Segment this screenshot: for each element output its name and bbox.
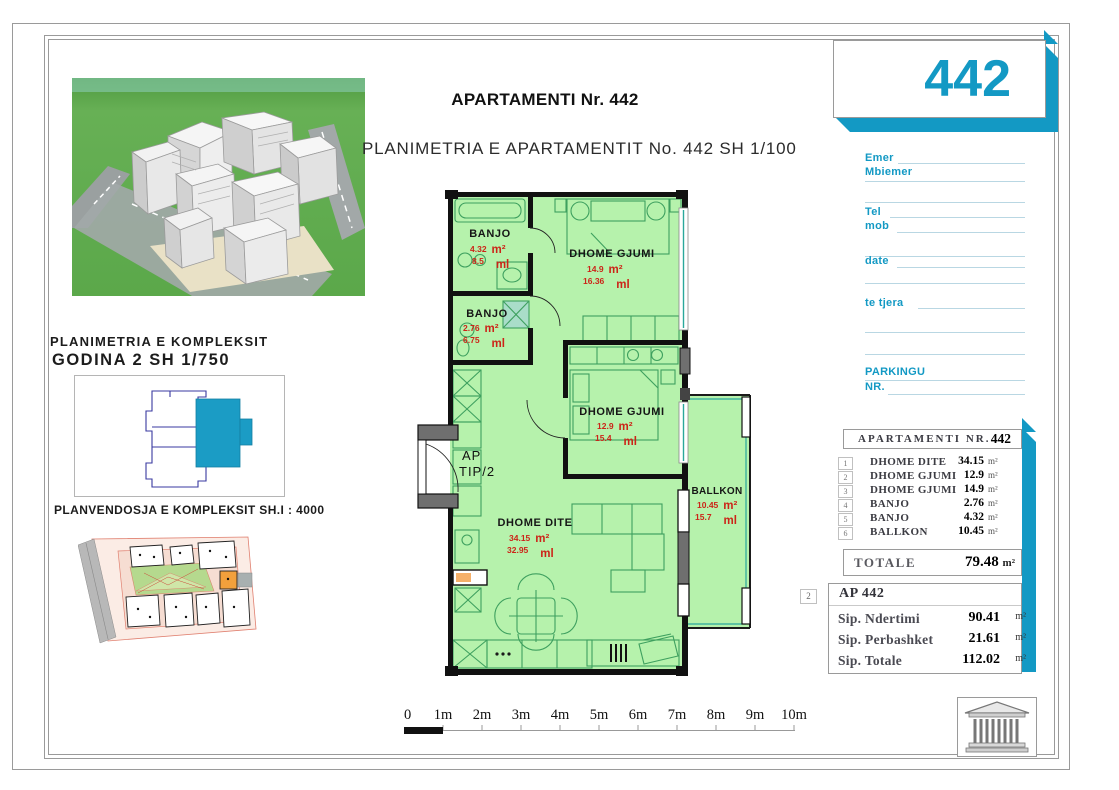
summary-row: Sip. Perbashket 21.61 m² bbox=[838, 631, 1028, 649]
site-plan-caption: PLANVENDOSJA E KOMPLEKSIT SH.I : 4000 bbox=[54, 503, 324, 517]
complex-plan-scale: GODINA 2 SH 1/750 bbox=[52, 351, 230, 370]
summary-row: Sip. Ndertimi 90.41 m² bbox=[838, 610, 1028, 628]
summary-title: AP 442 bbox=[829, 584, 1021, 606]
summary-row: Sip. Totale 112.02 m² bbox=[838, 652, 1028, 670]
field-label-emer: Emer bbox=[865, 152, 894, 164]
field-label-te-tjera: te tjera bbox=[865, 297, 903, 309]
scale-label-10m: 10m bbox=[781, 707, 808, 723]
scale-label-9m: 9m bbox=[746, 707, 765, 723]
room-label-dhome-gjumi-2: DHOME GJUMI bbox=[579, 406, 664, 418]
sheet-badge: 2 bbox=[800, 589, 817, 604]
scale-label-3m: 3m bbox=[512, 707, 531, 723]
summary-unit: m² bbox=[1015, 611, 1026, 622]
area-table-header-value: 442 bbox=[991, 431, 1021, 447]
row-unit: m² bbox=[988, 512, 998, 522]
scale-label-4m: 4m bbox=[551, 707, 570, 723]
table-row: 4 BANJO 2.76 m² bbox=[838, 498, 1020, 512]
row-name: BANJO bbox=[870, 512, 909, 524]
page-subtitle: PLANIMETRIA E APARTAMENTIT No. 442 SH 1/… bbox=[362, 139, 797, 159]
scale-label-2m: 2m bbox=[473, 707, 492, 723]
table-row: 2 DHOME GJUMI 12.9 m² bbox=[838, 470, 1020, 484]
scale-label-8m: 8m bbox=[707, 707, 726, 723]
summary-unit: m² bbox=[1015, 632, 1026, 643]
room-label-banjo-1: BANJO bbox=[469, 228, 511, 240]
total-value: 79.48 m² bbox=[965, 554, 1021, 571]
complex-key-plan bbox=[74, 375, 285, 497]
field-label-tel: Tel bbox=[865, 206, 881, 218]
row-unit: m² bbox=[988, 526, 998, 536]
row-value: 14.9 bbox=[946, 483, 984, 495]
page-title: APARTAMENTI Nr. 442 bbox=[395, 90, 695, 110]
room-label-ballkon: BALLKON bbox=[692, 486, 743, 497]
row-name: DHOME GJUMI bbox=[870, 484, 957, 496]
unit-number-box: 442 bbox=[833, 40, 1046, 118]
scale-label-1m: 1m bbox=[434, 707, 453, 723]
company-logo-icon bbox=[957, 697, 1037, 757]
field-label-mbiemer: Mbiemer bbox=[865, 166, 912, 178]
summary-label: Sip. Totale bbox=[838, 653, 902, 668]
field-line-blank-2 bbox=[865, 256, 1025, 257]
field-label-mob: mob bbox=[865, 220, 889, 232]
field-line-nr bbox=[888, 394, 1025, 395]
field-line-parkingu bbox=[865, 380, 1025, 381]
row-unit: m² bbox=[988, 484, 998, 494]
room-label-banjo-2: BANJO bbox=[466, 308, 508, 320]
field-line-tel bbox=[890, 217, 1025, 218]
scale-label-5m: 5m bbox=[590, 707, 609, 723]
field-line-emer bbox=[898, 163, 1025, 164]
field-line-mob bbox=[897, 232, 1025, 233]
field-line-blank-3 bbox=[865, 283, 1025, 284]
field-line-blank-5 bbox=[865, 354, 1025, 355]
row-name: DHOME GJUMI bbox=[870, 470, 957, 482]
field-line-date bbox=[897, 267, 1025, 268]
unit-type-label-ap: AP bbox=[462, 448, 481, 463]
scale-label-6m: 6m bbox=[629, 707, 648, 723]
summary-label: Sip. Perbashket bbox=[838, 632, 933, 647]
row-value: 34.15 bbox=[946, 455, 984, 467]
complex-plan-title: PLANIMETRIA E KOMPLEKSIT bbox=[50, 334, 268, 349]
summary-value: 90.41 bbox=[969, 610, 1001, 626]
field-line-te-tjera bbox=[918, 308, 1025, 309]
row-value: 2.76 bbox=[946, 497, 984, 509]
row-no: 4 bbox=[838, 499, 853, 512]
field-line-mbiemer bbox=[865, 181, 1025, 182]
field-label-parkingu: PARKINGU bbox=[865, 366, 925, 378]
plan-sheet: APARTAMENTI Nr. 442 PLANIMETRIA E APARTA… bbox=[0, 0, 1119, 790]
row-unit: m² bbox=[988, 456, 998, 466]
room-label-dhome-gjumi-1: DHOME GJUMI bbox=[569, 248, 654, 260]
row-no: 3 bbox=[838, 485, 853, 498]
row-no: 2 bbox=[838, 471, 853, 484]
row-value: 12.9 bbox=[946, 469, 984, 481]
site-plan bbox=[78, 533, 263, 648]
area-table-header-label: APARTAMENTI NR. bbox=[844, 433, 990, 445]
field-label-nr: NR. bbox=[865, 381, 885, 393]
summary-value: 112.02 bbox=[962, 652, 1000, 668]
field-line-blank-1 bbox=[865, 202, 1025, 203]
row-value: 10.45 bbox=[946, 525, 984, 537]
unit-type-label-tip: TIP/2 bbox=[459, 464, 495, 479]
unit-number: 442 bbox=[834, 41, 1045, 117]
row-no: 1 bbox=[838, 457, 853, 470]
row-name: BANJO bbox=[870, 498, 909, 510]
row-no: 6 bbox=[838, 527, 853, 540]
row-no: 5 bbox=[838, 513, 853, 526]
summary-label: Sip. Ndertimi bbox=[838, 611, 920, 626]
field-label-date: date bbox=[865, 255, 889, 267]
summary-value: 21.61 bbox=[969, 631, 1001, 647]
room-label-dhome-dite: DHOME DITE bbox=[497, 517, 572, 529]
table-row: 1 DHOME DITE 34.15 m² bbox=[838, 456, 1020, 470]
scale-label-7m: 7m bbox=[668, 707, 687, 723]
summary-unit: m² bbox=[1015, 653, 1026, 664]
scale-label-0: 0 bbox=[404, 707, 411, 723]
row-name: DHOME DITE bbox=[870, 456, 946, 468]
scale-bar: 0 1m 2m 3m 4m 5m 6m 7m 8m 9m 10m bbox=[398, 706, 808, 740]
row-value: 4.32 bbox=[946, 511, 984, 523]
total-row: TOTALE 79.48 m² bbox=[843, 549, 1022, 576]
field-line-blank-4 bbox=[865, 332, 1025, 333]
table-row: 5 BANJO 4.32 m² bbox=[838, 512, 1020, 526]
table-row: 6 BALLKON 10.45 m² bbox=[838, 526, 1020, 540]
area-table-header: APARTAMENTI NR. 442 bbox=[843, 429, 1022, 449]
row-unit: m² bbox=[988, 498, 998, 508]
floor-plan: BANJO 4.32m² 8.5ml DHOME GJUMI 14.9m² 16… bbox=[415, 188, 770, 680]
row-unit: m² bbox=[988, 470, 998, 480]
table-row: 3 DHOME GJUMI 14.9 m² bbox=[838, 484, 1020, 498]
total-label: TOTALE bbox=[844, 555, 916, 571]
complex-3d-render bbox=[72, 78, 365, 296]
row-name: BALLKON bbox=[870, 526, 928, 538]
